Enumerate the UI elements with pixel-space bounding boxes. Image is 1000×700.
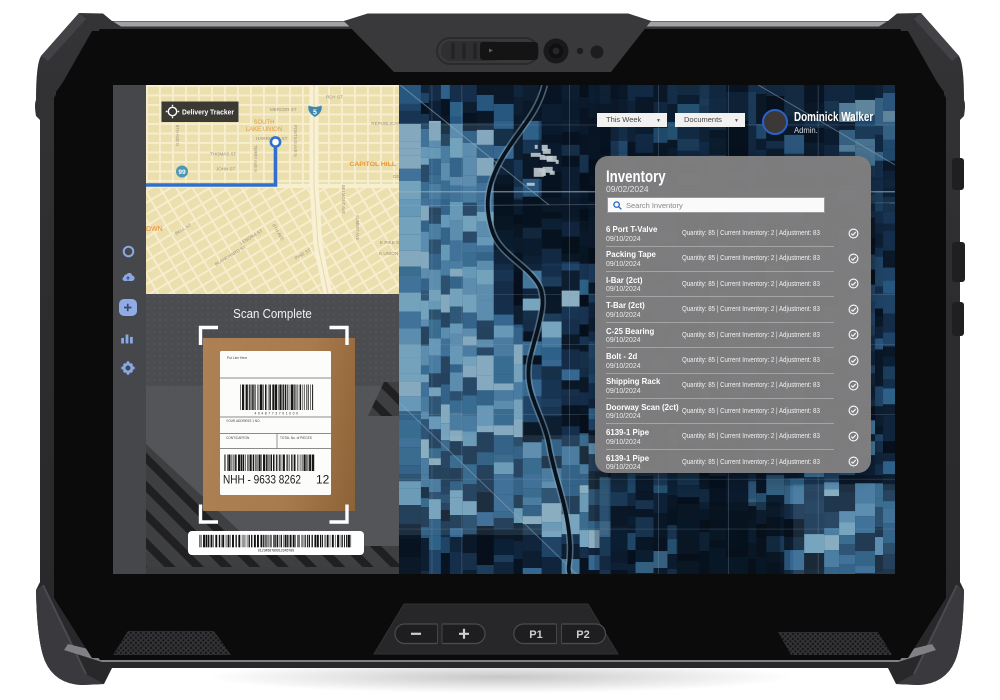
svg-text:P1: P1 (529, 629, 542, 641)
svg-text:99: 99 (178, 169, 186, 176)
svg-text:MERCER ST: MERCER ST (270, 107, 297, 112)
svg-text:Delivery Tracker: Delivery Tracker (182, 107, 234, 116)
svg-text:PONTIUS AVE N: PONTIUS AVE N (293, 125, 298, 157)
svg-text:0123456789012345789: 0123456789012345789 (257, 549, 293, 553)
svg-text:E UNION ST: E UNION ST (379, 251, 399, 256)
svg-text:THOMAS ST: THOMAS ST (210, 152, 237, 157)
svg-text:CAPITOL HILL: CAPITOL HILL (349, 161, 396, 168)
svg-text:5: 5 (313, 110, 317, 117)
svg-text:SUMMIT AVE: SUMMIT AVE (355, 215, 360, 241)
svg-text:DWN: DWN (146, 226, 163, 233)
svg-text:BELMONT AVE: BELMONT AVE (341, 185, 346, 214)
svg-text:JOHN ST: JOHN ST (216, 167, 236, 172)
svg-text:E PIKE ST: E PIKE ST (380, 240, 399, 245)
svg-text:8TH AVE N: 8TH AVE N (175, 125, 180, 146)
svg-text:LAKE UNION: LAKE UNION (246, 127, 282, 133)
svg-text:SOUTH: SOUTH (254, 120, 275, 126)
svg-text:ROY ST: ROY ST (326, 95, 343, 100)
svg-text:TERRY AVE N: TERRY AVE N (253, 145, 258, 172)
svg-text:P2: P2 (576, 629, 589, 641)
svg-text:REPUBLICAN: REPUBLICAN (371, 121, 399, 126)
